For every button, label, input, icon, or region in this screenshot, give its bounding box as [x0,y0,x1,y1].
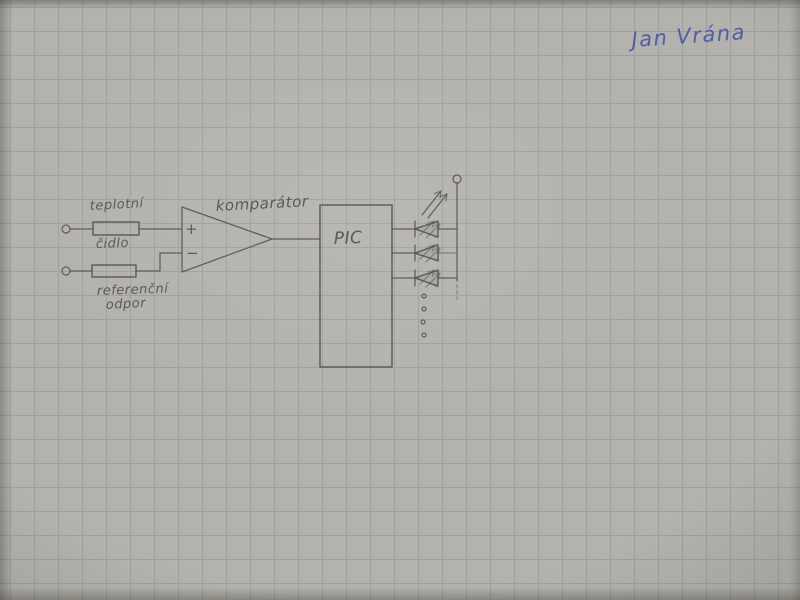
sensor-terminal-icon [62,225,70,233]
graph-paper-photo: teplotní čidlo referenční odpor + − komp… [0,0,800,600]
wire [136,253,182,271]
reference-terminal-icon [62,267,70,275]
continuation-dots [421,294,426,337]
comparator: + − komparátor [182,192,320,272]
temperature-sensor-resistor [93,222,139,235]
reference-resistor [92,265,136,277]
comparator-triangle [182,207,272,272]
sensor-label-bottom: čidlo [96,236,130,252]
reference-label-bottom: odpor [105,296,147,313]
dot-icon [422,294,426,298]
minus-input-label: − [186,244,199,262]
signature: Jan Vrána [627,20,747,52]
pic-mcu: PIC [320,205,392,367]
comparator-label: komparátor [215,192,309,215]
pic-label: PIC [333,228,362,249]
supply-terminal-icon [453,175,461,183]
sensor-branch: teplotní čidlo [62,196,182,252]
led-symbol [414,269,440,287]
dot-icon [421,320,425,324]
circuit-sketch: teplotní čidlo referenční odpor + − komp… [0,0,800,600]
sensor-label-top: teplotní [89,196,145,214]
led-symbol [414,220,440,238]
dot-icon [422,333,426,337]
light-arrow-icon [422,191,441,215]
light-emission-arrows [422,191,447,218]
light-arrow-icon [428,194,447,218]
plus-input-label: + [185,220,198,238]
reference-branch: referenční odpor [62,253,182,313]
led-symbol [414,244,440,262]
dot-icon [422,307,426,311]
led-array [392,175,461,337]
